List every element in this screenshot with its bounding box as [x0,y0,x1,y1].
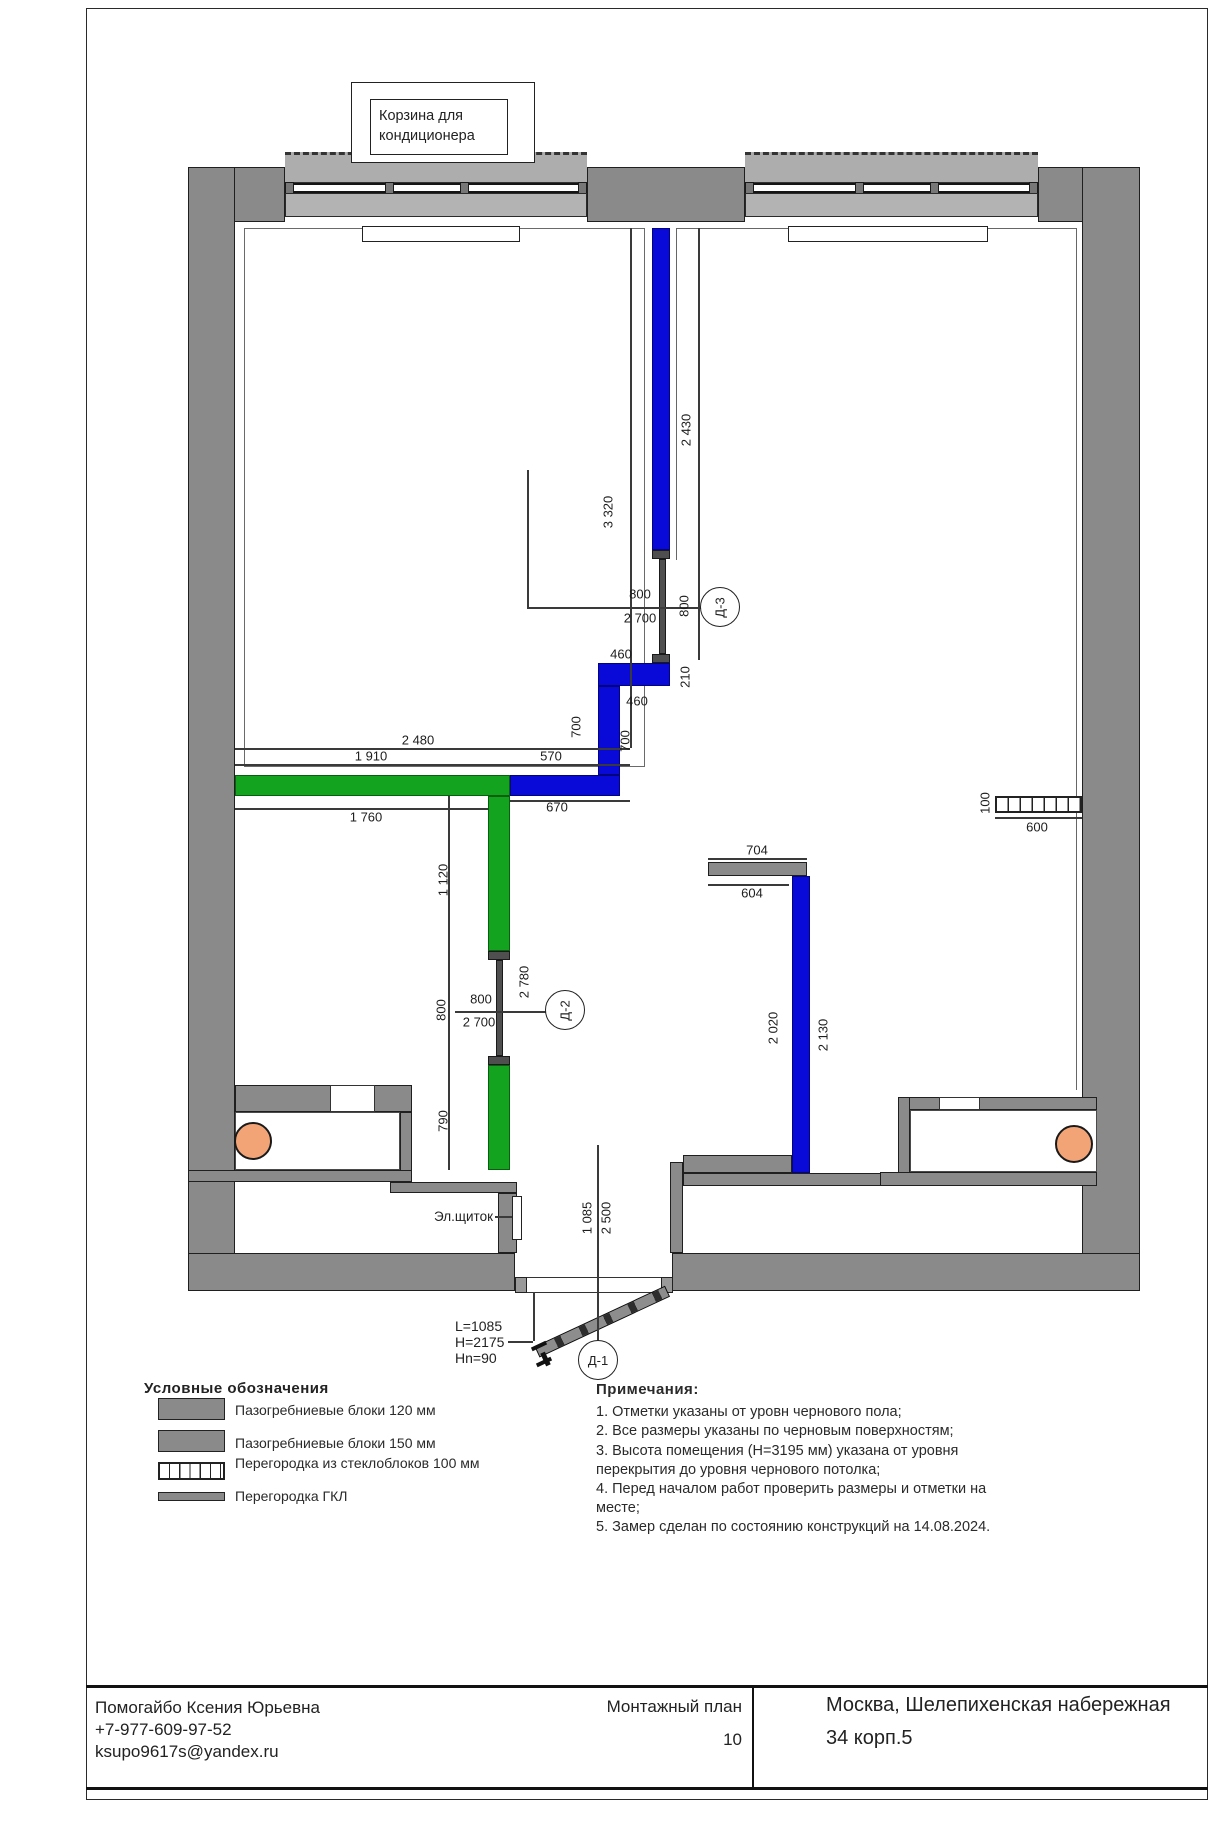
wall-left-room-bottom [235,1085,412,1112]
window-left-frame [285,183,587,193]
door1-specs-leader [508,1341,533,1343]
room-outline-top-left [244,228,645,767]
dim-line [235,748,630,750]
drawing-sheet: Корзина для кондиционера Эл.щиток [0,0,1214,1822]
titleblock-bottom-border [86,1787,1208,1790]
partition-blue-horizontal [510,775,620,796]
wall-bottom-left [188,1253,515,1291]
dim-label: 700 [569,716,584,738]
wall-top-middle [587,167,745,222]
wall-entry-jamb-right [670,1162,683,1253]
door1-spec-line: L=1085 [455,1318,504,1334]
door2-callout-line [455,1011,546,1013]
column-circle-right [1055,1125,1093,1163]
door3-jamb-bottom [652,654,670,663]
dim-label: 100 [978,792,993,814]
note-item: 3. Высота помещения (H=3195 мм) указана … [596,1442,1030,1480]
wall-hall-right-top [683,1173,910,1186]
door1-specs-leader [533,1292,535,1341]
partition-green-vertical-top [488,796,510,951]
titleblock-top-border [86,1685,1208,1688]
dim-label: 3 320 [601,496,616,529]
door1-specs: L=1085 H=2175 Hn=90 [455,1318,504,1366]
dim-label: 2 480 [402,733,435,748]
dim-label: 700 [618,730,633,752]
niche-left-window [330,1085,375,1112]
wall-left-niche-bottom [188,1170,412,1182]
door2-leaf-line [496,960,503,1056]
author-email: ksupo9617s@yandex.ru [95,1741,320,1763]
door1-spec-line: H=2175 [455,1334,504,1350]
electrical-panel [512,1196,522,1240]
dim-label: 570 [540,749,562,764]
note-item: 2. Все размеры указаны по черновым повер… [596,1422,1030,1441]
notes-title: Примечания: [596,1380,1030,1399]
dim-label: 2 700 [463,1015,496,1030]
dim-label: 1 120 [436,864,451,897]
titleblock-divider [752,1685,754,1790]
door2-jamb-bottom [488,1056,510,1065]
titleblock-contact: Помогайбо Ксения Юрьевна +7-977-609-97-5… [95,1697,320,1763]
window-left-sill [285,193,587,217]
dim-label: 2 130 [816,1019,831,1052]
notes-block: Примечания: 1. Отметки указаны от уровн … [596,1380,1030,1538]
plaster-line-left [676,228,677,560]
radiator-right [788,226,988,242]
dim-line [630,228,632,748]
dim-label: 670 [546,800,568,815]
door2-jamb-top [488,951,510,960]
legend-item-label: Пазогребниевые блоки 120 мм [235,1403,490,1418]
legend-swatch-glassblock [158,1462,225,1480]
dim-label: 1 910 [355,749,388,764]
column-circle-left [234,1122,272,1160]
dim-line [510,800,630,802]
partition-green-horizontal [235,775,510,796]
dim-label: 790 [436,1110,451,1132]
window-right-sill [745,193,1038,217]
door3-jamb-top [652,550,670,559]
wall-stub-under-blue [683,1155,792,1173]
partition-blue-elbow [598,663,670,686]
dim-label: 604 [741,886,763,901]
dim-label: 800 [434,999,449,1021]
electrical-panel-leader [495,1216,512,1218]
dim-label: 704 [746,843,768,858]
legend-swatch-block120 [158,1398,225,1420]
dim-line [995,817,1082,819]
note-item: 1. Отметки указаны от уровн чернового по… [596,1403,1030,1422]
dim-label: 210 [678,666,693,688]
door-tag-d3: Д-3 [700,587,740,627]
partition-glass-block [995,796,1082,813]
legend-item-label: Пазогребниевые блоки 150 мм [235,1436,490,1451]
dim-label: 800 [629,587,651,602]
entrance-threshold [515,1277,673,1293]
dim-label: 460 [610,647,632,662]
legend-item-label: Перегородка из стеклоблоков 100 мм [235,1456,490,1471]
legend-item-label: Перегородка ГКЛ [235,1489,490,1504]
partition-blue-top [652,228,670,550]
project-address-line2: 34 корп.5 [826,1727,913,1750]
project-address-line1: Москва, Шелепихенская набережная [826,1694,1171,1717]
dim-label: 600 [1026,820,1048,835]
note-item: 4. Перед началом работ проверить размеры… [596,1480,1030,1518]
dim-line [527,470,529,607]
door3-callout-line [527,607,701,609]
door-tag-label: Д-3 [713,597,728,617]
author-phone: +7-977-609-97-52 [95,1719,320,1741]
door-tag-label: Д-1 [588,1353,608,1368]
ac-basket-callout-text: Корзина для кондиционера [370,99,508,155]
plaster-line-right [1076,228,1077,1090]
dim-label: 2 500 [599,1202,614,1235]
author-name: Помогайбо Ксения Юрьевна [95,1697,320,1719]
legend-title: Условные обозначения [144,1380,329,1397]
dim-line [708,858,807,860]
radiator-left [362,226,520,242]
door-tag-label: Д-2 [558,1000,573,1020]
dim-label: 2 780 [517,966,532,999]
dim-label: 460 [626,694,648,709]
wall-hall-left [390,1182,517,1193]
wall-stub-704 [708,862,807,876]
partition-green-vertical-bottom [488,1065,510,1170]
dim-label: 1 085 [580,1202,595,1235]
legend-swatch-block150 [158,1430,225,1452]
note-item: 5. Замер сделан по состоянию конструкций… [596,1518,1030,1537]
dim-label: 800 [470,992,492,1007]
dim-line [698,228,700,660]
window-right-frame [745,183,1038,193]
wall-left [188,167,235,1291]
door-tag-d2: Д-2 [545,990,585,1030]
window-right-ac-basket [745,152,1038,183]
dim-label: 2 700 [624,611,657,626]
door1-callout-line [597,1145,599,1342]
dim-label: 2 430 [679,414,694,447]
page-number: 10 [560,1730,742,1750]
wall-bottom-right [672,1253,1140,1291]
entrance-jamb-block-left [515,1277,527,1293]
door-tag-d1: Д-1 [578,1340,618,1380]
dim-label: 2 020 [766,1012,781,1045]
dim-label: 800 [677,595,692,617]
electrical-panel-label: Эл.щиток [395,1209,493,1224]
dim-label: 1 760 [350,810,383,825]
door1-spec-line: Hn=90 [455,1350,504,1366]
wall-right-niche-bottom [880,1172,1097,1186]
document-title: Монтажный план [560,1697,742,1717]
wall-right-niche-top [898,1097,1097,1110]
dim-line [235,764,630,766]
legend-swatch-gkl [158,1492,225,1501]
partition-blue-right [792,876,810,1173]
niche-right-window [939,1097,980,1110]
